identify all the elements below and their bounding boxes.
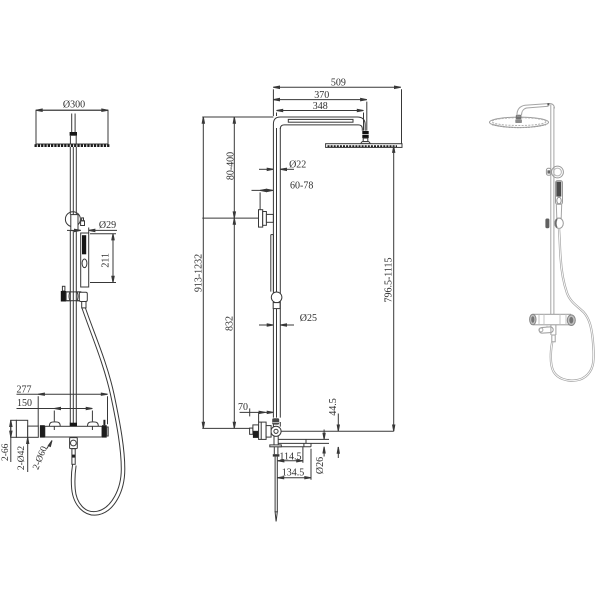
svg-text:134.5: 134.5 — [282, 468, 305, 479]
svg-text:796.5-1115: 796.5-1115 — [383, 257, 394, 302]
svg-text:44.5: 44.5 — [328, 398, 339, 416]
svg-text:Ø22: Ø22 — [289, 159, 306, 170]
svg-text:Ø26: Ø26 — [315, 457, 326, 474]
svg-text:80-400: 80-400 — [225, 152, 236, 180]
svg-text:2-Ø42: 2-Ø42 — [17, 446, 27, 471]
svg-text:Ø25: Ø25 — [300, 313, 317, 324]
svg-text:70: 70 — [238, 402, 248, 413]
svg-text:60-78: 60-78 — [290, 181, 313, 192]
svg-text:2-66: 2-66 — [1, 443, 11, 461]
svg-text:509: 509 — [331, 77, 346, 88]
svg-text:211: 211 — [100, 253, 111, 268]
svg-text:150: 150 — [17, 398, 32, 409]
svg-text:Ø29: Ø29 — [99, 220, 116, 231]
svg-text:Ø300: Ø300 — [63, 100, 85, 111]
svg-text:913-1232: 913-1232 — [194, 254, 205, 292]
svg-text:832: 832 — [225, 316, 236, 331]
